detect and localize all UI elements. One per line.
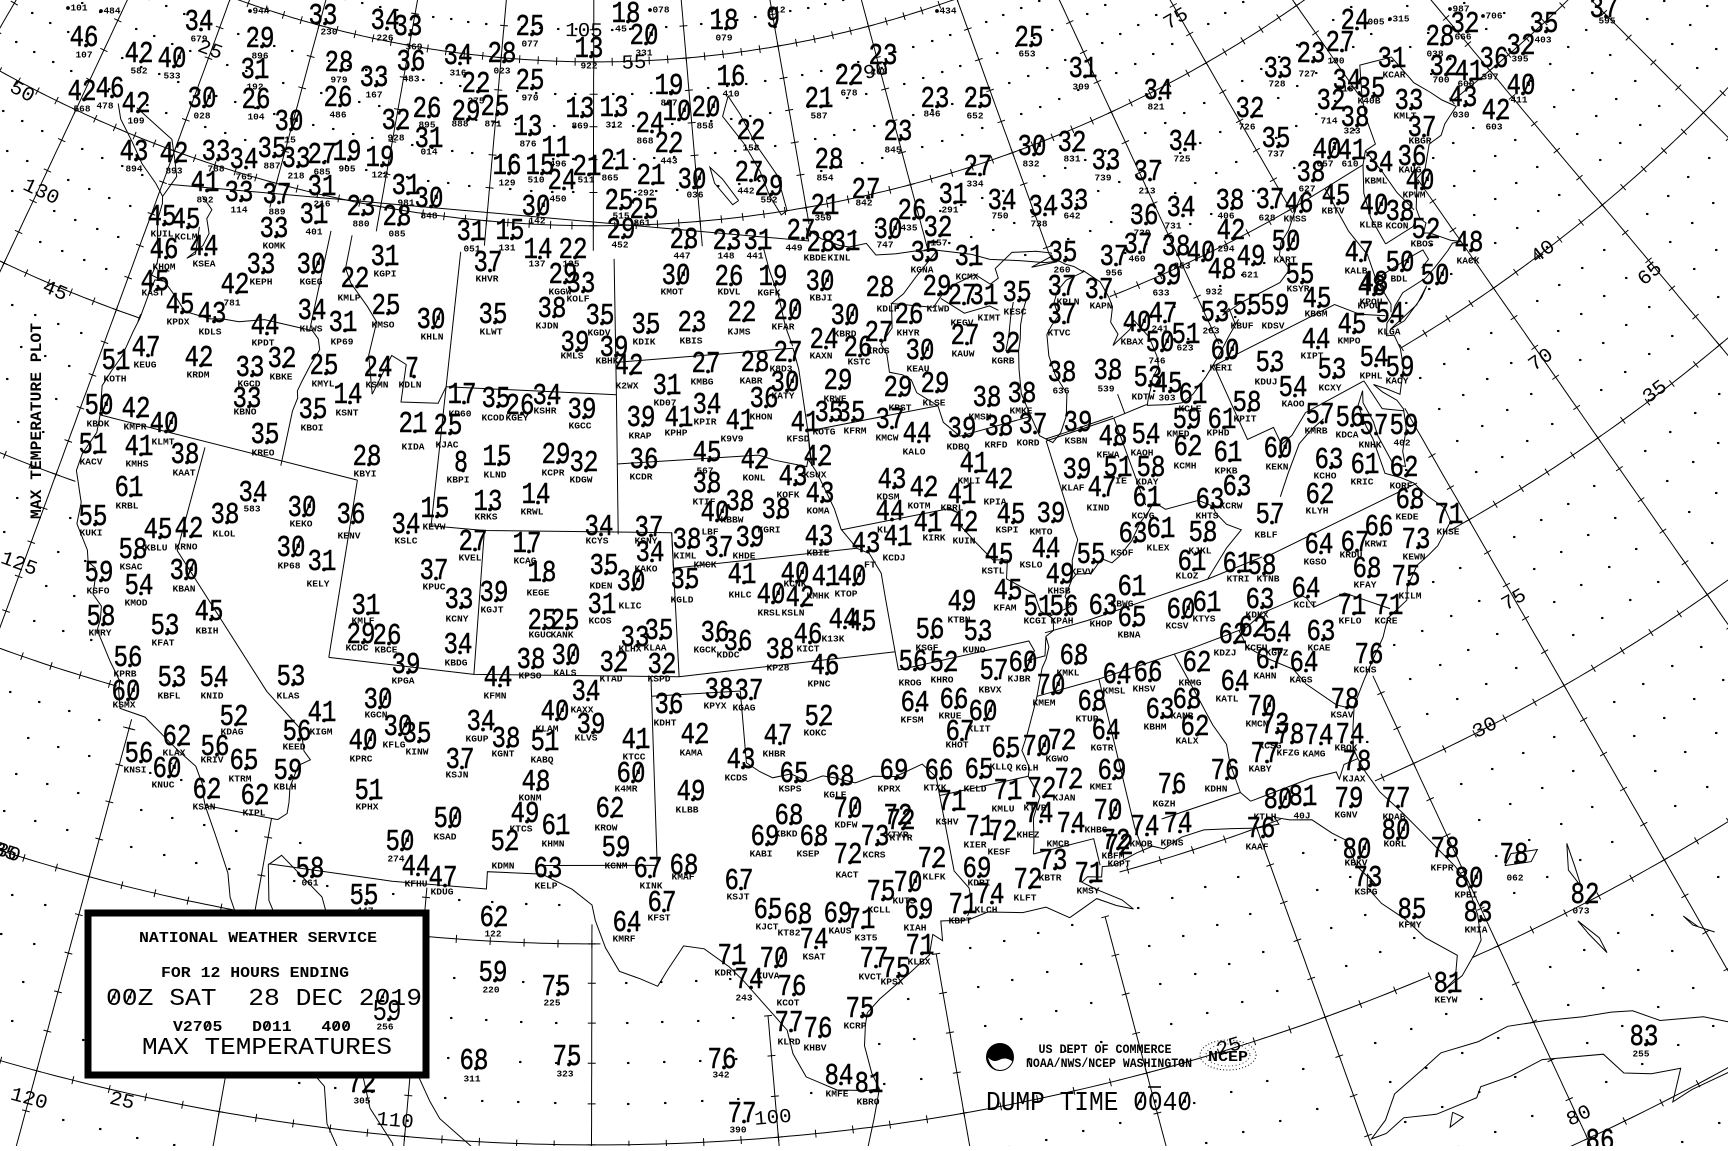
svg-text:621: 621	[1242, 270, 1259, 281]
svg-text:41: 41	[884, 520, 913, 555]
svg-text:KFAR: KFAR	[772, 322, 795, 333]
svg-text:KGJT: KGJT	[481, 605, 504, 616]
svg-text:KHOT: KHOT	[946, 740, 969, 751]
svg-text:077: 077	[522, 39, 539, 50]
svg-text:KABQ: KABQ	[531, 755, 554, 766]
svg-text:KNUC: KNUC	[152, 780, 175, 791]
svg-text:KESC: KESC	[1004, 307, 1027, 318]
svg-text:41: 41	[728, 558, 757, 593]
svg-text:KSMN: KSMN	[366, 380, 389, 391]
svg-text:KAMG: KAMG	[1303, 749, 1326, 760]
svg-text:334: 334	[967, 179, 984, 190]
svg-text:KBLH: KBLH	[274, 782, 297, 793]
svg-text:29: 29	[923, 270, 952, 305]
svg-text:KMCW: KMCW	[876, 433, 899, 444]
svg-text:KLAS: KLAS	[277, 691, 300, 702]
svg-text:725: 725	[1174, 154, 1191, 165]
svg-text:KIWD: KIWD	[927, 304, 950, 315]
svg-text:KDDC: KDDC	[717, 650, 740, 661]
svg-text:880: 880	[353, 219, 370, 230]
svg-text:KLGA: KLGA	[1378, 327, 1401, 338]
svg-text:KSNT: KSNT	[336, 408, 359, 419]
svg-text:KFSM: KFSM	[901, 715, 924, 726]
svg-text:59: 59	[1261, 289, 1290, 324]
svg-text:KHMN: KHMN	[542, 839, 565, 850]
svg-text:854: 854	[817, 173, 834, 184]
svg-text:706: 706	[1486, 11, 1503, 22]
svg-text:KMFD: KMFD	[1167, 429, 1190, 440]
svg-text:KBPI: KBPI	[447, 475, 470, 486]
svg-text:KLAF: KLAF	[1062, 483, 1085, 494]
svg-text:666: 666	[1455, 32, 1472, 43]
svg-text:KVCT: KVCT	[859, 972, 882, 983]
svg-text:KFAM: KFAM	[994, 603, 1017, 614]
svg-text:KOTH: KOTH	[104, 374, 127, 385]
svg-text:342: 342	[713, 1070, 730, 1081]
svg-text:KTYS: KTYS	[1193, 614, 1216, 625]
svg-text:KSAD: KSAD	[434, 832, 457, 843]
svg-text:KRIC: KRIC	[1351, 477, 1374, 488]
svg-text:KCPR: KCPR	[542, 468, 565, 479]
svg-text:KELP: KELP	[535, 881, 558, 892]
svg-text:079: 079	[716, 33, 733, 44]
svg-text:K13K: K13K	[822, 634, 845, 645]
svg-text:KACT: KACT	[836, 870, 859, 881]
svg-text:KSMX: KSMX	[113, 700, 136, 711]
svg-text:29: 29	[884, 371, 913, 406]
svg-text:KBAN: KBAN	[173, 584, 196, 595]
svg-text:KSEA: KSEA	[193, 259, 216, 270]
svg-text:KCON: KCON	[1386, 221, 1409, 232]
svg-text:KRBL: KRBL	[116, 501, 139, 512]
svg-text:970: 970	[522, 93, 539, 104]
svg-text:167: 167	[366, 90, 383, 101]
svg-text:KFAT: KFAT	[152, 638, 175, 649]
svg-text:679: 679	[191, 34, 208, 45]
svg-text:KEUG: KEUG	[134, 360, 157, 371]
svg-text:KCAR: KCAR	[1383, 70, 1406, 81]
svg-text:KAOO: KAOO	[1282, 399, 1305, 410]
svg-text:350: 350	[815, 213, 832, 224]
svg-text:78: 78	[1500, 838, 1529, 873]
svg-text:KLND: KLND	[484, 470, 507, 481]
svg-text:KAAT: KAAT	[173, 468, 196, 479]
svg-text:KINL: KINL	[828, 253, 851, 264]
svg-text:86: 86	[1586, 1124, 1615, 1146]
svg-text:KDCA: KDCA	[1336, 430, 1359, 441]
svg-text:KFZG: KFZG	[1277, 748, 1300, 759]
svg-text:KBUF: KBUF	[1231, 321, 1254, 332]
svg-text:KMEM: KMEM	[1033, 698, 1056, 709]
svg-text:KBKV: KBKV	[1345, 858, 1368, 869]
svg-text:KTYR: KTYR	[890, 833, 913, 844]
svg-text:700: 700	[1433, 75, 1450, 86]
svg-text:KGAG: KGAG	[733, 703, 756, 714]
svg-text:KCLT: KCLT	[1294, 600, 1317, 611]
svg-text:KDLS: KDLS	[199, 327, 222, 338]
svg-text:510: 510	[528, 175, 545, 186]
svg-text:435: 435	[901, 223, 918, 234]
svg-text:35: 35	[590, 549, 619, 584]
svg-text:KLYH: KLYH	[1306, 506, 1329, 517]
svg-text:KSHR: KSHR	[534, 406, 557, 417]
svg-text:KENV: KENV	[338, 531, 361, 542]
svg-text:KTOP: KTOP	[835, 589, 858, 600]
svg-text:KRSL: KRSL	[758, 608, 781, 619]
svg-text:845: 845	[885, 145, 902, 156]
svg-text:KJDN: KJDN	[536, 321, 559, 332]
svg-text:71: 71	[938, 785, 967, 820]
svg-text:KALX: KALX	[1176, 736, 1199, 747]
svg-text:KLVS: KLVS	[575, 733, 598, 744]
svg-text:KMBG: KMBG	[691, 377, 714, 388]
svg-text:KSJN: KSJN	[446, 770, 469, 781]
svg-text:KSFO: KSFO	[87, 586, 110, 597]
svg-text:KGLD: KGLD	[671, 595, 694, 606]
svg-text:55: 55	[1233, 289, 1262, 324]
svg-text:KBTV: KBTV	[1322, 206, 1345, 217]
svg-text:869: 869	[572, 121, 589, 132]
svg-text:KHVR: KHVR	[476, 274, 499, 285]
svg-text:230: 230	[321, 27, 338, 38]
svg-text:KSAT: KSAT	[803, 952, 826, 963]
svg-text:KBLU: KBLU	[145, 543, 168, 554]
svg-text:061: 061	[302, 878, 319, 889]
svg-text:005: 005	[1368, 17, 1385, 28]
svg-text:KAUW: KAUW	[952, 349, 975, 360]
svg-text:331: 331	[636, 48, 653, 59]
svg-text:511: 511	[578, 175, 595, 186]
svg-text:50: 50	[1421, 259, 1450, 294]
svg-text:434: 434	[940, 6, 957, 17]
svg-text:085: 085	[389, 229, 406, 240]
svg-text:KFMN: KFMN	[484, 691, 507, 702]
svg-text:V2705 D011 400: V2705 D011 400	[173, 1019, 351, 1036]
svg-text:KBNA: KBNA	[1118, 630, 1141, 641]
svg-text:KIMT: KIMT	[978, 313, 1001, 324]
svg-text:486: 486	[330, 110, 347, 121]
svg-text:KPYX: KPYX	[704, 701, 727, 712]
svg-text:KPIR: KPIR	[694, 417, 717, 428]
svg-text:KMLS: KMLS	[561, 351, 584, 362]
svg-text:256: 256	[377, 1022, 394, 1033]
svg-text:KABY: KABY	[1249, 764, 1272, 775]
svg-text:KBGM: KBGM	[1305, 309, 1328, 320]
svg-text:KBYI: KBYI	[354, 469, 377, 480]
svg-text:255: 255	[1633, 1049, 1650, 1060]
svg-text:74: 74	[1025, 797, 1054, 832]
svg-text:KBDG: KBDG	[445, 658, 468, 669]
svg-text:KFMY: KFMY	[1399, 920, 1422, 931]
svg-text:737: 737	[1268, 149, 1285, 160]
svg-text:603: 603	[1486, 122, 1503, 133]
svg-text:35: 35	[671, 563, 700, 598]
svg-text:KDIK: KDIK	[633, 337, 656, 348]
svg-text:653: 653	[1019, 49, 1036, 60]
svg-text:KBFL: KBFL	[158, 691, 181, 702]
svg-text:33: 33	[394, 10, 423, 45]
svg-text:738: 738	[1031, 219, 1048, 230]
svg-text:KDTW: KDTW	[1132, 392, 1155, 403]
svg-text:208: 208	[871, 67, 888, 78]
svg-text:225: 225	[544, 998, 561, 1009]
svg-text:309: 309	[1073, 82, 1090, 93]
svg-text:KSJT: KSJT	[727, 892, 750, 903]
svg-text:KLEB: KLEB	[1360, 220, 1383, 231]
svg-text:628: 628	[1259, 213, 1276, 224]
svg-text:KHSE: KHSE	[1437, 527, 1460, 538]
svg-text:460: 460	[1129, 254, 1146, 265]
svg-text:KIER: KIER	[964, 840, 987, 851]
svg-text:KGRB: KGRB	[992, 356, 1015, 367]
svg-text:KMOD: KMOD	[125, 598, 148, 609]
svg-text:KLEX: KLEX	[1147, 543, 1170, 554]
svg-text:652: 652	[967, 111, 984, 122]
svg-text:KLOL: KLOL	[213, 529, 236, 540]
svg-text:45: 45	[615, 24, 627, 35]
svg-text:48: 48	[1208, 253, 1237, 288]
svg-text:KEPH: KEPH	[250, 277, 273, 288]
svg-text:KRKS: KRKS	[475, 512, 498, 523]
svg-text:KPRX: KPRX	[878, 784, 901, 795]
svg-text:KUIN: KUIN	[953, 536, 976, 547]
svg-text:888: 888	[452, 119, 469, 130]
svg-text:014: 014	[421, 147, 438, 158]
svg-text:KBJI: KBJI	[810, 293, 833, 304]
svg-text:KFST: KFST	[648, 913, 671, 924]
svg-text:311: 311	[464, 1074, 481, 1085]
svg-text:KBVX: KBVX	[979, 685, 1002, 696]
svg-text:KPRC: KPRC	[350, 754, 373, 765]
svg-text:KPHX: KPHX	[356, 802, 379, 813]
svg-text:KPNC: KPNC	[808, 679, 831, 690]
svg-text:38: 38	[762, 493, 791, 528]
svg-text:KSPD: KSPD	[648, 674, 671, 685]
svg-text:KATL: KATL	[1216, 694, 1239, 705]
svg-text:KOKC: KOKC	[804, 728, 827, 739]
svg-text:KIRK: KIRK	[923, 533, 946, 544]
svg-text:KREO: KREO	[252, 448, 275, 459]
svg-text:110: 110	[375, 1109, 414, 1135]
svg-text:KCLL: KCLL	[868, 905, 891, 916]
svg-text:312: 312	[606, 120, 623, 131]
svg-text:KABI: KABI	[750, 849, 773, 860]
svg-text:KRNO: KRNO	[175, 542, 198, 553]
svg-text:KBKE: KBKE	[270, 372, 293, 383]
svg-text:72: 72	[834, 838, 863, 873]
svg-text:KRDM: KRDM	[187, 370, 210, 381]
svg-text:129: 129	[499, 178, 516, 189]
svg-text:871: 871	[485, 119, 502, 130]
svg-text:KLBB: KLBB	[676, 805, 699, 816]
svg-text:KPUC: KPUC	[423, 582, 446, 593]
svg-text:KMLP: KMLP	[338, 293, 361, 304]
svg-text:KCXY: KCXY	[1319, 383, 1342, 394]
svg-text:395: 395	[1512, 54, 1529, 65]
svg-text:KP69: KP69	[331, 337, 354, 348]
svg-text:31: 31	[308, 545, 337, 580]
svg-text:KMOT: KMOT	[661, 287, 684, 298]
svg-text:KEGE: KEGE	[527, 588, 550, 599]
svg-text:KAHN: KAHN	[1254, 671, 1277, 682]
svg-text:114: 114	[231, 205, 248, 216]
svg-text:226: 226	[377, 33, 394, 44]
svg-text:KONL: KONL	[743, 473, 766, 484]
svg-text:KERI: KERI	[1210, 363, 1233, 374]
svg-text:023: 023	[494, 66, 511, 77]
svg-text:442: 442	[738, 186, 755, 197]
svg-text:KCOS: KCOS	[589, 616, 612, 627]
svg-text:KOTG: KOTG	[813, 427, 836, 438]
svg-text:KPHL: KPHL	[1360, 371, 1383, 382]
svg-text:KPSO: KPSO	[519, 671, 542, 682]
svg-text:922: 922	[581, 61, 598, 72]
svg-text:KMIA: KMIA	[1465, 925, 1488, 936]
svg-text:KLIC: KLIC	[619, 601, 642, 612]
svg-text:483: 483	[403, 74, 420, 85]
svg-text:101: 101	[71, 3, 88, 14]
svg-text:714: 714	[1321, 116, 1338, 127]
svg-text:KCMH: KCMH	[1174, 461, 1197, 472]
svg-text:KAST: KAST	[142, 288, 165, 299]
svg-text:KRIV: KRIV	[201, 755, 224, 766]
svg-text:KBIH: KBIH	[196, 626, 219, 637]
svg-text:KGNV: KGNV	[1335, 810, 1358, 821]
svg-text:KCNM: KCNM	[605, 861, 628, 872]
svg-text:KHOP: KHOP	[1090, 619, 1113, 630]
svg-text:KIND: KIND	[1087, 503, 1110, 514]
svg-text:KCSV: KCSV	[1166, 621, 1189, 632]
svg-text:KGPI: KGPI	[374, 269, 397, 280]
svg-text:KBIE: KBIE	[807, 548, 830, 559]
svg-text:KRWL: KRWL	[521, 507, 544, 518]
svg-text:KPIT: KPIT	[1234, 414, 1257, 425]
svg-text:KSEP: KSEP	[797, 849, 820, 860]
svg-text:36: 36	[337, 498, 366, 533]
svg-text:KMSS: KMSS	[1284, 214, 1307, 225]
svg-text:858: 858	[697, 121, 714, 132]
svg-text:402: 402	[1394, 438, 1411, 449]
svg-text:28: 28	[866, 271, 895, 306]
svg-text:KELD: KELD	[964, 784, 987, 795]
svg-text:KROS: KROS	[867, 346, 890, 357]
svg-text:KORD: KORD	[1017, 438, 1040, 449]
svg-text:10: 10	[663, 95, 692, 130]
svg-text:KHLC: KHLC	[729, 590, 752, 601]
svg-text:478: 478	[97, 101, 114, 112]
svg-text:KLWT: KLWT	[480, 327, 503, 338]
svg-text:KMSO: KMSO	[372, 320, 395, 331]
svg-text:KMAF: KMAF	[672, 872, 695, 883]
svg-text:623: 623	[1177, 343, 1194, 354]
svg-text:45: 45	[848, 605, 877, 640]
svg-text:KCDC: KCDC	[346, 643, 369, 654]
svg-text:KBNO: KBNO	[234, 407, 257, 418]
svg-text:30: 30	[617, 565, 646, 600]
svg-text:KMEI: KMEI	[1090, 782, 1113, 793]
svg-text:109: 109	[128, 116, 145, 127]
svg-text:KLOZ: KLOZ	[1176, 571, 1199, 582]
svg-text:484: 484	[104, 6, 121, 17]
svg-text:KGEG: KGEG	[300, 277, 323, 288]
svg-text:62: 62	[1183, 646, 1212, 681]
svg-text:KP68: KP68	[278, 561, 301, 572]
svg-text:030: 030	[1453, 110, 1470, 121]
svg-text:073: 073	[1573, 906, 1590, 917]
svg-text:213: 213	[1139, 186, 1156, 197]
svg-text:KPGA: KPGA	[392, 676, 415, 687]
svg-text:KAGS: KAGS	[1290, 675, 1313, 686]
svg-text:KRAP: KRAP	[629, 431, 652, 442]
svg-text:726: 726	[1239, 122, 1256, 133]
svg-text:KACY: KACY	[1386, 376, 1409, 387]
svg-text:KBIS: KBIS	[680, 336, 703, 347]
svg-text:KAAF: KAAF	[1246, 842, 1269, 853]
svg-text:KLFT: KLFT	[1014, 893, 1037, 904]
svg-text:KMYL: KMYL	[312, 379, 335, 390]
svg-text:KGPT: KGPT	[1108, 859, 1131, 870]
svg-text:KIDA: KIDA	[402, 442, 425, 453]
svg-text:KVEL: KVEL	[459, 553, 482, 564]
svg-text:BDL: BDL	[1391, 274, 1408, 285]
svg-text:NCEP: NCEP	[1208, 1049, 1248, 1066]
svg-text:KMHK: KMHK	[807, 591, 830, 602]
svg-text:56: 56	[899, 645, 928, 680]
svg-text:KCNY: KCNY	[446, 614, 469, 625]
svg-text:KJBR: KJBR	[1008, 674, 1031, 685]
svg-text:411: 411	[1511, 95, 1528, 106]
svg-text:KDLN: KDLN	[399, 380, 422, 391]
svg-text:747: 747	[877, 240, 894, 251]
svg-text:401: 401	[306, 227, 323, 238]
svg-text:43: 43	[852, 527, 881, 562]
svg-text:036: 036	[687, 190, 704, 201]
svg-text:450: 450	[550, 194, 567, 205]
svg-text:KMPO: KMPO	[1338, 336, 1361, 347]
svg-text:KIPL: KIPL	[243, 808, 266, 819]
svg-text:610: 610	[1342, 159, 1359, 170]
svg-text:KGCK: KGCK	[694, 645, 717, 656]
svg-text:KBPT: KBPT	[949, 916, 972, 927]
svg-text:887: 887	[264, 161, 281, 172]
svg-text:KLCH: KLCH	[975, 905, 998, 916]
svg-text:832: 832	[1023, 159, 1040, 170]
svg-text:582: 582	[131, 66, 148, 77]
svg-text:KGTR: KGTR	[1091, 743, 1114, 754]
svg-text:23: 23	[1297, 37, 1326, 72]
svg-text:KDFW: KDFW	[835, 820, 858, 831]
svg-text:865: 865	[602, 173, 619, 184]
svg-text:KEKN: KEKN	[1266, 462, 1289, 473]
svg-text:KEED: KEED	[283, 742, 306, 753]
svg-text:21: 21	[399, 407, 428, 442]
svg-text:IE: IE	[1115, 476, 1127, 487]
svg-text:KBHM: KBHM	[1144, 722, 1167, 733]
svg-text:KLRD: KLRD	[778, 1037, 801, 1048]
svg-text:KMRF: KMRF	[613, 934, 636, 945]
svg-text:449: 449	[786, 243, 803, 254]
svg-text:KINW: KINW	[406, 747, 429, 758]
svg-text:57: 57	[1256, 498, 1285, 533]
svg-text:NATIONAL WEATHER SERVICE: NATIONAL WEATHER SERVICE	[139, 930, 377, 947]
svg-text:KDHT: KDHT	[654, 718, 677, 729]
svg-text:369: 369	[406, 42, 423, 53]
svg-text:KACK: KACK	[1457, 256, 1480, 267]
svg-text:FOR 12 HOURS ENDING: FOR 12 HOURS ENDING	[161, 965, 349, 982]
svg-text:KLSE: KLSE	[923, 398, 946, 409]
svg-text:595: 595	[1599, 16, 1616, 27]
svg-text:750: 750	[992, 211, 1009, 222]
